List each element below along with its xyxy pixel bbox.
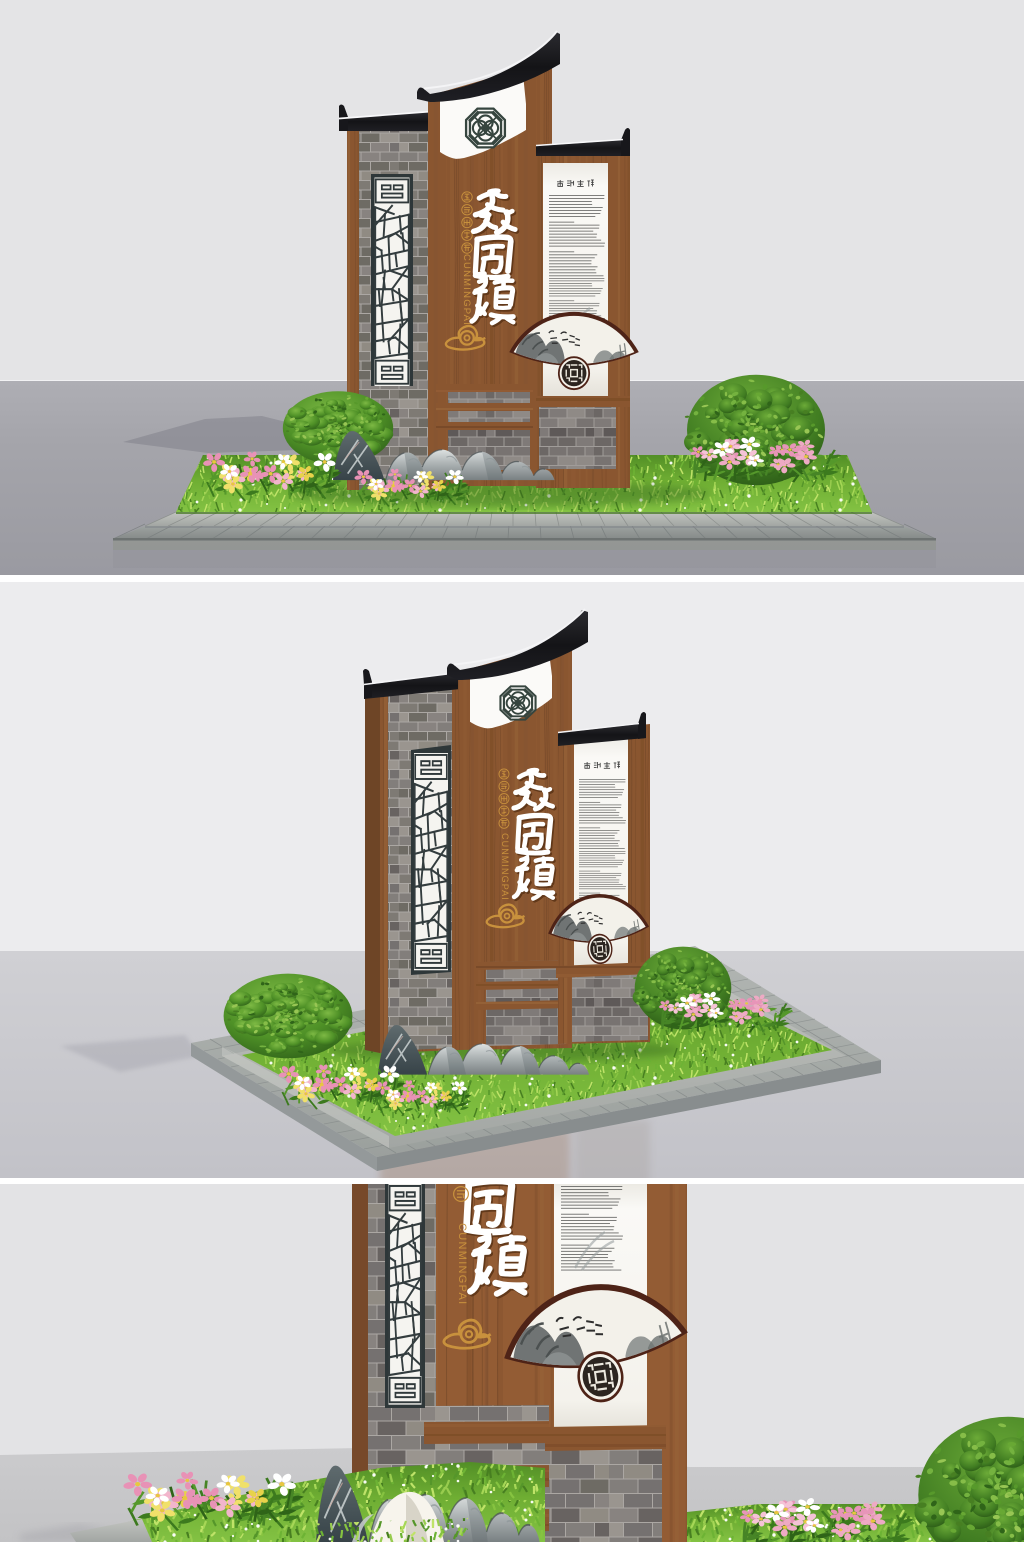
svg-text:CUNMINGPAI: CUNMINGPAI (500, 833, 510, 901)
svg-text:CUNMINGPAI: CUNMINGPAI (461, 254, 472, 326)
svg-text:CUNMINGPAI: CUNMINGPAI (456, 1223, 468, 1305)
